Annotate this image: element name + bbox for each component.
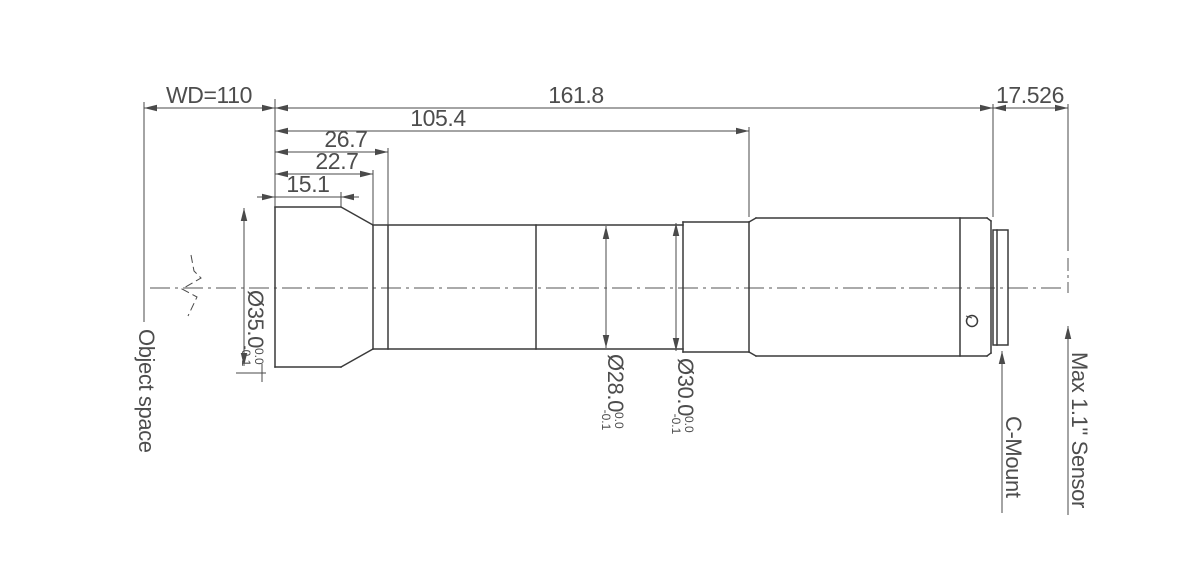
object-space-label: Object space: [134, 329, 159, 453]
dim-151-label: 15.1: [286, 171, 329, 197]
dim-161-label: 161.8: [548, 82, 604, 108]
mid-barrel: [373, 225, 683, 349]
dim-d30-label: Ø30.00.0-0.1: [669, 358, 698, 435]
d35-tol-lower: -0.1: [239, 346, 253, 367]
d30-value: Ø30.0: [673, 358, 698, 416]
rear-chamfer-top-left: [749, 218, 756, 222]
d35-value: Ø35.0: [243, 290, 268, 348]
lens-body: [275, 207, 1008, 367]
d28-value: Ø28.0: [603, 354, 628, 412]
c-mount-label: C-Mount: [1001, 416, 1026, 498]
d30-tol-lower: -0.1: [669, 414, 683, 435]
rear-barrel: [749, 218, 991, 356]
dim-wd-label: WD=110: [166, 82, 252, 108]
d28-tol-upper: 0.0: [612, 412, 626, 429]
lens-mechanical-drawing: WD=110 161.8 17.526 105.4 26.7 22.7 15.1…: [0, 0, 1200, 580]
dim-d35-label: Ø35.00.0-0.1: [239, 290, 268, 367]
d28-tol-lower: -0.1: [599, 410, 613, 431]
dim-105-label: 105.4: [410, 105, 466, 131]
drawing-svg: WD=110 161.8 17.526 105.4 26.7 22.7 15.1…: [0, 0, 1200, 580]
front-barrel: [275, 207, 373, 367]
object-plane: [144, 102, 201, 322]
horizontal-dimensions: WD=110 161.8 17.526 105.4 26.7 22.7 15.1: [144, 82, 1068, 197]
break-symbol: [182, 255, 201, 316]
diameter-30-section: [683, 222, 749, 352]
diameter-dimensions: Ø35.00.0-0.1 Ø28.00.0-0.1 Ø30.00.0-0.1: [239, 208, 698, 435]
dim-flange-label: 17.526: [996, 82, 1064, 108]
d30-tol-upper: 0.0: [682, 416, 696, 433]
dim-d28-label: Ø28.00.0-0.1: [599, 354, 628, 431]
taper-bottom: [341, 349, 373, 367]
d35-tol-upper: 0.0: [252, 348, 266, 365]
taper-top: [341, 207, 373, 225]
rear-chamfer-bottom-left: [749, 352, 756, 356]
sensor-label: Max 1.1" Sensor: [1067, 352, 1092, 508]
